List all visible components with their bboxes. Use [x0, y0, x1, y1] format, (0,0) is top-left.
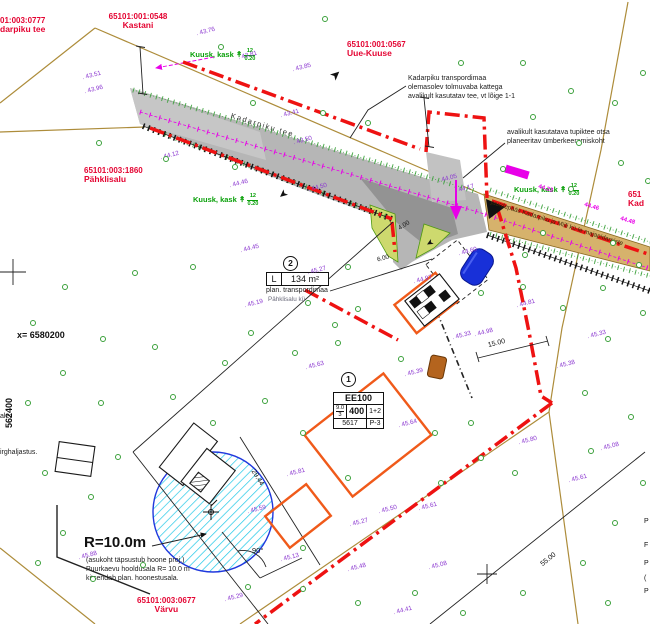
- existing-outbuilding: [55, 442, 95, 477]
- building-number: 5617: [334, 419, 367, 429]
- well-radius-label: R=10.0m: [84, 534, 146, 551]
- tree-group-text: Kuusk, kask: [193, 196, 237, 205]
- tree-circle-icon: [355, 600, 361, 606]
- tree-circle-icon: [335, 340, 341, 346]
- tree-circle-icon: [320, 110, 326, 116]
- tree-circle-icon: [645, 178, 650, 184]
- tree-circle-icon: [568, 186, 574, 192]
- tree-circle-icon: [618, 160, 624, 166]
- plan-drawing: [0, 0, 650, 624]
- edge-text-fragment: P: [644, 588, 649, 595]
- tree-circle-icon: [478, 290, 484, 296]
- tree-circle-icon: [210, 420, 216, 426]
- tree-circle-icon: [582, 390, 588, 396]
- well-note: (asukoht täpsustub hoone proj.) Puurkaev…: [86, 556, 190, 583]
- note-line: kitsendab plan. hoonestusala.: [86, 574, 190, 583]
- tree-circle-icon: [300, 430, 306, 436]
- tree-circle-icon: [580, 560, 586, 566]
- tree-circle-icon: [30, 320, 36, 326]
- tree-circle-icon: [140, 562, 146, 568]
- tree-circle-icon: [520, 590, 526, 596]
- tree-circle-icon: [248, 330, 254, 336]
- note-line: Puurkaevu hooldusala R= 10.0 m: [86, 565, 190, 574]
- tree-circle-icon: [600, 285, 606, 291]
- parcel-name: darpiku tee: [0, 25, 45, 35]
- tree-circle-icon: [100, 336, 106, 342]
- area-2-box: L 134 m²: [266, 272, 329, 286]
- note-line: avalikult kasutatava tupiktee otsa: [507, 128, 610, 137]
- tree-circle-icon: [98, 400, 104, 406]
- parcel-name: Kastani: [98, 21, 178, 31]
- tree-group-label: Kuusk, kask ↟ 120.20: [193, 193, 258, 207]
- tree-circle-icon: [35, 560, 41, 566]
- tree-circle-icon: [640, 480, 646, 486]
- note-line: avalikult kasutatav tee, vt lõige 1-1: [408, 92, 515, 101]
- building-1-index: 1: [341, 372, 356, 387]
- area-2-size: 134 m²: [282, 273, 328, 285]
- angle-label: 90°: [252, 547, 263, 556]
- tree-circle-icon: [96, 140, 102, 146]
- tree-circle-icon: [163, 156, 169, 162]
- tree-circle-icon: [640, 310, 646, 316]
- tree-circle-icon: [568, 88, 574, 94]
- tree-circle-icon: [222, 360, 228, 366]
- parcel-label-kastani: 65101:001:0548 Kastani: [98, 12, 178, 31]
- tree-circle-icon: [460, 610, 466, 616]
- tree-circle-icon: [612, 520, 618, 526]
- brown-structure: [427, 355, 447, 380]
- turnaround-annotation: avalikult kasutatava tupiktee otsa plane…: [507, 128, 610, 146]
- tree-circle-icon: [88, 494, 94, 500]
- building-1-table: EE100 9.03 400 1+2 5617 P-3: [333, 392, 384, 429]
- edge-text-fragment: (: [644, 575, 646, 582]
- tree-circle-icon: [576, 140, 582, 146]
- parcel-name: Uue-Kuuse: [347, 49, 406, 59]
- building-code: EE100: [334, 393, 384, 405]
- tree-circle-icon: [438, 480, 444, 486]
- tree-circle-icon: [560, 305, 566, 311]
- tree-circle-icon: [292, 350, 298, 356]
- tree-circle-icon: [42, 470, 48, 476]
- tree-circle-icon: [522, 252, 528, 258]
- coordinate-x-label: x= 6580200: [17, 330, 65, 340]
- note-line: planeeritav ümberkeeramiskoht: [507, 137, 610, 146]
- cadastral-boundary-lines: [0, 2, 628, 624]
- parcel-label-uue-kuuse: 65101:001:0567 Uue-Kuuse: [347, 40, 406, 59]
- tree-circle-icon: [250, 100, 256, 106]
- tree-circle-icon: [152, 344, 158, 350]
- tree-circle-icon: [115, 454, 121, 460]
- note-line: Kadarpiku transpordimaa: [408, 74, 515, 83]
- building-count: 1+2: [367, 405, 384, 419]
- tree-circle-icon: [636, 262, 642, 268]
- tree-circle-icon: [60, 370, 66, 376]
- tree-circle-icon: [512, 470, 518, 476]
- tree-circle-icon: [245, 584, 251, 590]
- tree-circle-icon: [132, 270, 138, 276]
- tree-circle-icon: [520, 284, 526, 290]
- conifer-icon: ↟: [560, 186, 567, 194]
- edge-text-fragment: ale:: [0, 412, 11, 421]
- tree-circle-icon: [345, 264, 351, 270]
- tree-circle-icon: [170, 394, 176, 400]
- tree-circle-icon: [588, 448, 594, 454]
- tree-count-fraction: 120.20: [247, 193, 258, 207]
- tree-circle-icon: [605, 336, 611, 342]
- tree-circle-icon: [60, 530, 66, 536]
- area-2-letter: L: [267, 273, 282, 285]
- edge-text-fragment: P: [644, 560, 649, 567]
- edge-text-fragment: irghaljastus.: [0, 448, 37, 457]
- building-height-cell: 9.03: [334, 405, 347, 419]
- tree-circle-icon: [468, 420, 474, 426]
- parcel-name: Kad: [628, 199, 644, 209]
- edge-text-fragment: P: [644, 518, 649, 525]
- conifer-icon: ↟: [239, 196, 246, 204]
- tree-circle-icon: [365, 120, 371, 126]
- tree-circle-icon: [262, 398, 268, 404]
- tree-circle-icon: [605, 600, 611, 606]
- parcel-label-pahklisalu: 65101:003:1860 Pähklisalu: [84, 166, 143, 185]
- tree-circle-icon: [458, 60, 464, 66]
- tree-circle-icon: [540, 230, 546, 236]
- tree-circle-icon: [90, 576, 96, 582]
- edge-text-fragment: F: [644, 542, 648, 549]
- tree-circle-icon: [62, 284, 68, 290]
- tree-diameter: 0.20: [247, 201, 258, 207]
- tree-circle-icon: [478, 455, 484, 461]
- building-storeys: 3: [336, 412, 344, 418]
- tree-circle-icon: [628, 414, 634, 420]
- building-height: 9.0: [336, 405, 344, 412]
- tree-circle-icon: [520, 60, 526, 66]
- tree-circle-icon: [322, 16, 328, 22]
- note-line: olemasolev tolmuvaba kattega: [408, 83, 515, 92]
- tree-circle-icon: [332, 322, 338, 328]
- road-annotation: Kadarpiku transpordimaa olemasolev tolmu…: [408, 74, 515, 101]
- area-2-index: 2: [283, 256, 298, 271]
- parcel-label-kadarpiku-tee: 01:003:0777 darpiku tee: [0, 16, 45, 35]
- area-2-use: plan. transpordimaa: [266, 287, 328, 295]
- tree-circle-icon: [232, 164, 238, 170]
- tree-circle-icon: [305, 300, 311, 306]
- tree-circle-icon: [640, 70, 646, 76]
- tree-circle-icon: [355, 306, 361, 312]
- tree-circle-icon: [25, 400, 31, 406]
- tree-count: 12: [247, 193, 258, 201]
- tree-circle-icon: [218, 44, 224, 50]
- parcel-label-right-cut: 651 Kad: [628, 190, 644, 209]
- tree-circle-icon: [412, 590, 418, 596]
- tree-circle-icon: [190, 264, 196, 270]
- parcel-name: Värvu: [137, 605, 196, 615]
- tree-circle-icon: [500, 166, 506, 172]
- parcel-name: Pähklisalu: [84, 175, 143, 185]
- site-plan: 01:003:0777 darpiku tee 65101:001:0548 K…: [0, 0, 650, 624]
- building-area: 400: [347, 405, 367, 419]
- tree-group-text: Kuusk, kask: [190, 51, 234, 60]
- parcel-label-varvu: 65101:003:0677 Värvu: [137, 596, 196, 615]
- tree-circle-icon: [300, 545, 306, 551]
- tree-circle-icon: [300, 586, 306, 592]
- building-type: P-3: [367, 419, 384, 429]
- note-line: (asukoht täpsustub hoone proj.): [86, 556, 190, 565]
- area-2-parcel: Pähklisalu kü: [268, 296, 305, 303]
- tree-circle-icon: [432, 430, 438, 436]
- tree-circle-icon: [612, 100, 618, 106]
- tree-circle-icon: [345, 475, 351, 481]
- tree-circle-icon: [530, 114, 536, 120]
- tree-circle-icon: [398, 356, 404, 362]
- tree-circle-icon: [610, 240, 616, 246]
